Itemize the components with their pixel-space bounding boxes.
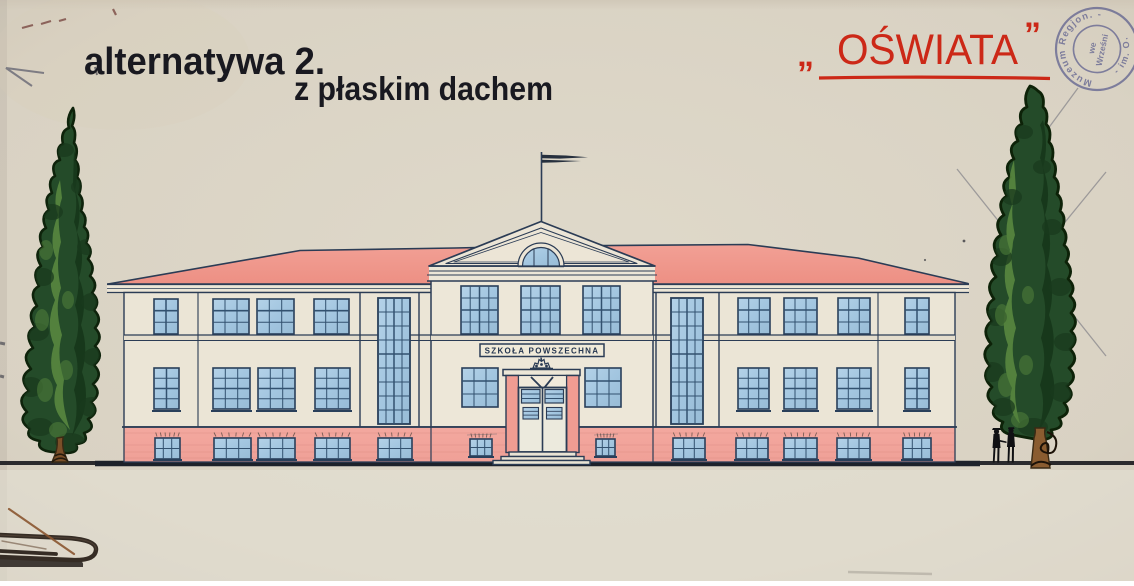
svg-text:„: „: [797, 36, 814, 74]
svg-text:OŚWIATA: OŚWIATA: [837, 25, 1018, 74]
svg-text:alternatywa 2.: alternatywa 2.: [84, 41, 325, 83]
svg-text:”: ”: [1024, 16, 1041, 54]
svg-text:z płaskim dachem: z płaskim dachem: [294, 70, 553, 107]
svg-text:SZKOŁA POWSZECHNA: SZKOŁA POWSZECHNA: [485, 347, 600, 356]
